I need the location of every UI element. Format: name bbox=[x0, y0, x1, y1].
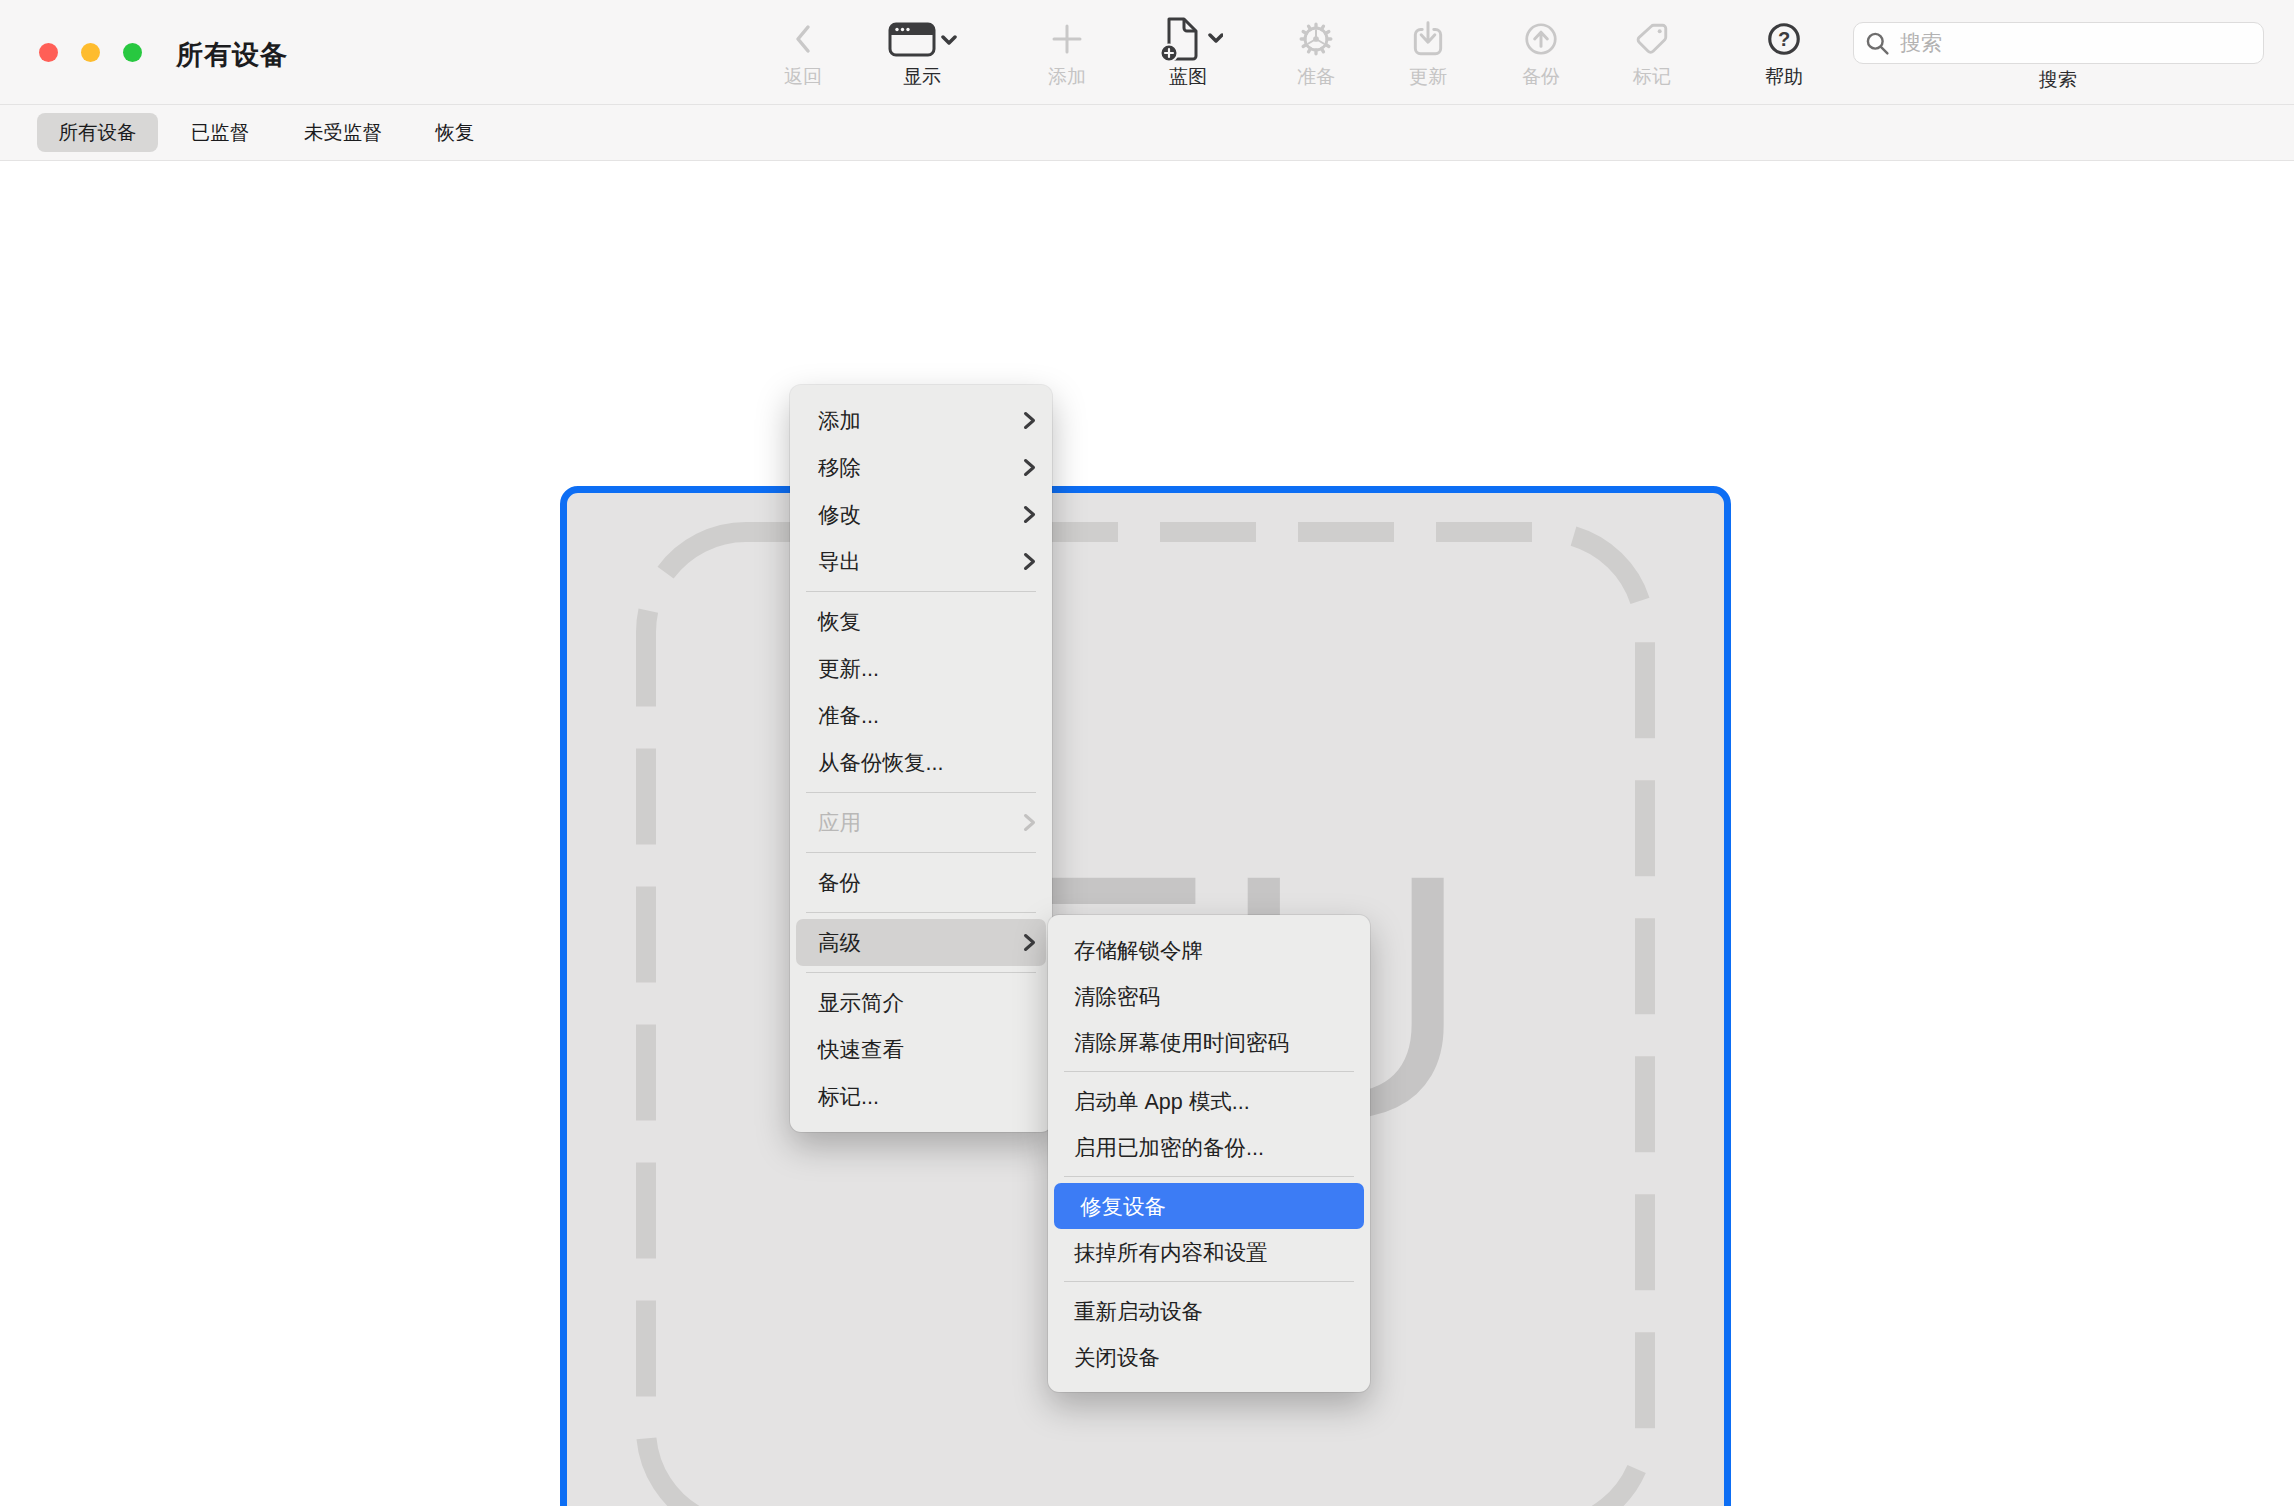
menu-item-quick-look[interactable]: 快速查看 bbox=[790, 1026, 1052, 1073]
menu-separator bbox=[806, 852, 1036, 853]
menu-item-remove[interactable]: 移除 bbox=[790, 444, 1052, 491]
submenu-item-start-single-app-mode[interactable]: 启动单 App 模式... bbox=[1048, 1078, 1370, 1124]
tab-supervised[interactable]: 已监督 bbox=[180, 113, 260, 152]
submenu-chevron-icon bbox=[1023, 933, 1036, 952]
menu-separator bbox=[1064, 1281, 1354, 1282]
toolbar-tag-button: 标记 bbox=[1582, 15, 1722, 90]
window-icon bbox=[852, 15, 992, 63]
toolbar-display-button[interactable]: 显示 bbox=[852, 15, 992, 90]
submenu-item-erase-all-content-and-settings[interactable]: 抹掉所有内容和设置 bbox=[1048, 1229, 1370, 1275]
device-filter-tabbar: 所有设备 已监督 未受监督 恢复 bbox=[0, 105, 2294, 161]
submenu-item-revive-device[interactable]: 修复设备 bbox=[1054, 1183, 1364, 1229]
close-window-button[interactable] bbox=[39, 43, 58, 62]
submenu-chevron-icon bbox=[1023, 411, 1036, 430]
advanced-submenu: 存储解锁令牌 清除密码 清除屏幕使用时间密码 启动单 App 模式... 启用已… bbox=[1048, 915, 1370, 1392]
tab-recovery[interactable]: 恢复 bbox=[424, 113, 486, 152]
menu-item-backup[interactable]: 备份 bbox=[790, 859, 1052, 906]
menu-item-export[interactable]: 导出 bbox=[790, 538, 1052, 585]
toolbar-help-button[interactable]: ? 帮助 bbox=[1714, 15, 1854, 90]
menu-item-restore[interactable]: 恢复 bbox=[790, 598, 1052, 645]
submenu-item-shut-down-device[interactable]: 关闭设备 bbox=[1048, 1334, 1370, 1380]
plus-icon bbox=[997, 15, 1137, 63]
menu-item-update[interactable]: 更新... bbox=[790, 645, 1052, 692]
question-circle-icon: ? bbox=[1714, 15, 1854, 63]
submenu-item-clear-screen-time-passcode[interactable]: 清除屏幕使用时间密码 bbox=[1048, 1019, 1370, 1065]
tab-unsupervised[interactable]: 未受监督 bbox=[292, 113, 394, 152]
menu-item-advanced[interactable]: 高级 bbox=[796, 919, 1046, 966]
device-context-menu: 添加 移除 修改 导出 恢复 更新... 准备... 从备份恢复... 应用 备… bbox=[790, 385, 1052, 1132]
menu-separator bbox=[806, 792, 1036, 793]
menu-separator bbox=[806, 912, 1036, 913]
submenu-chevron-icon bbox=[1023, 505, 1036, 524]
submenu-item-save-unlock-token[interactable]: 存储解锁令牌 bbox=[1048, 927, 1370, 973]
title-bar: 所有设备 返回 显示 添加 bbox=[0, 0, 2294, 105]
tab-all-devices[interactable]: 所有设备 bbox=[37, 113, 158, 152]
submenu-item-clear-passcode[interactable]: 清除密码 bbox=[1048, 973, 1370, 1019]
menu-item-modify[interactable]: 修改 bbox=[790, 491, 1052, 538]
toolbar-blueprint-button[interactable]: 蓝图 bbox=[1118, 15, 1258, 90]
zoom-window-button[interactable] bbox=[123, 43, 142, 62]
submenu-chevron-icon bbox=[1023, 458, 1036, 477]
search-icon bbox=[1864, 30, 1890, 56]
window-title: 所有设备 bbox=[176, 37, 288, 73]
toolbar-add-button: 添加 bbox=[997, 15, 1137, 90]
menu-item-apps: 应用 bbox=[790, 799, 1052, 846]
menu-item-tag[interactable]: 标记... bbox=[790, 1073, 1052, 1120]
submenu-item-restart-device[interactable]: 重新启动设备 bbox=[1048, 1288, 1370, 1334]
search-field[interactable] bbox=[1853, 22, 2264, 64]
menu-item-add[interactable]: 添加 bbox=[790, 397, 1052, 444]
menu-separator bbox=[1064, 1071, 1354, 1072]
menu-separator bbox=[806, 972, 1036, 973]
search-input[interactable] bbox=[1898, 30, 2253, 56]
document-plus-icon bbox=[1118, 15, 1258, 63]
submenu-chevron-icon bbox=[1023, 552, 1036, 571]
menu-item-restore-from-backup[interactable]: 从备份恢复... bbox=[790, 739, 1052, 786]
toolbar-search-label: 搜索 bbox=[1988, 67, 2128, 93]
menu-item-prepare[interactable]: 准备... bbox=[790, 692, 1052, 739]
svg-text:?: ? bbox=[1778, 28, 1790, 50]
menu-separator bbox=[1064, 1176, 1354, 1177]
minimize-window-button[interactable] bbox=[81, 43, 100, 62]
menu-separator bbox=[806, 591, 1036, 592]
tag-icon bbox=[1582, 15, 1722, 63]
submenu-item-enable-encrypted-backups[interactable]: 启用已加密的备份... bbox=[1048, 1124, 1370, 1170]
submenu-chevron-icon bbox=[1023, 813, 1036, 832]
menu-item-get-info[interactable]: 显示简介 bbox=[790, 979, 1052, 1026]
